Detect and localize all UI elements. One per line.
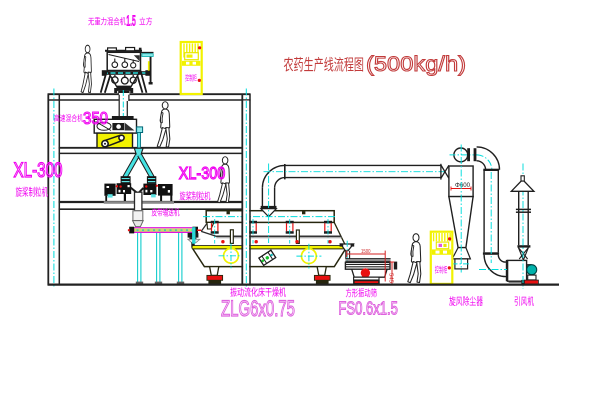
svg-text:引风机: 引风机 — [514, 295, 534, 308]
svg-text:ZLG6x0.75: ZLG6x0.75 — [221, 296, 295, 321]
svg-text:旋桨制粒机: 旋桨制粒机 — [180, 190, 211, 202]
svg-text:FS0.6x1.5: FS0.6x1.5 — [338, 298, 398, 319]
svg-text:控制柜: 控制柜 — [185, 73, 197, 83]
svg-text:旋风除尘器: 旋风除尘器 — [449, 295, 483, 308]
svg-text:旋桨制粒机: 旋桨制粒机 — [16, 186, 49, 199]
svg-text:高速混合机: 高速混合机 — [54, 113, 83, 123]
svg-text:控制柜: 控制柜 — [435, 264, 448, 274]
svg-text:350: 350 — [83, 108, 108, 128]
svg-text:545: 545 — [387, 273, 393, 283]
svg-text:XL-300: XL-300 — [14, 159, 63, 182]
svg-text:1500: 1500 — [361, 249, 371, 255]
svg-text:无重力混合机: 无重力混合机 — [88, 17, 126, 27]
svg-text:立方: 立方 — [139, 17, 153, 27]
svg-text:(500kg/h): (500kg/h) — [366, 52, 466, 76]
svg-text:1.5: 1.5 — [126, 13, 136, 29]
svg-text:皮带输送机: 皮带输送机 — [152, 208, 180, 218]
svg-text:Φ600: Φ600 — [455, 182, 471, 189]
svg-text:农药生产线流程图: 农药生产线流程图 — [284, 56, 365, 74]
svg-text:XL-300: XL-300 — [179, 163, 226, 183]
